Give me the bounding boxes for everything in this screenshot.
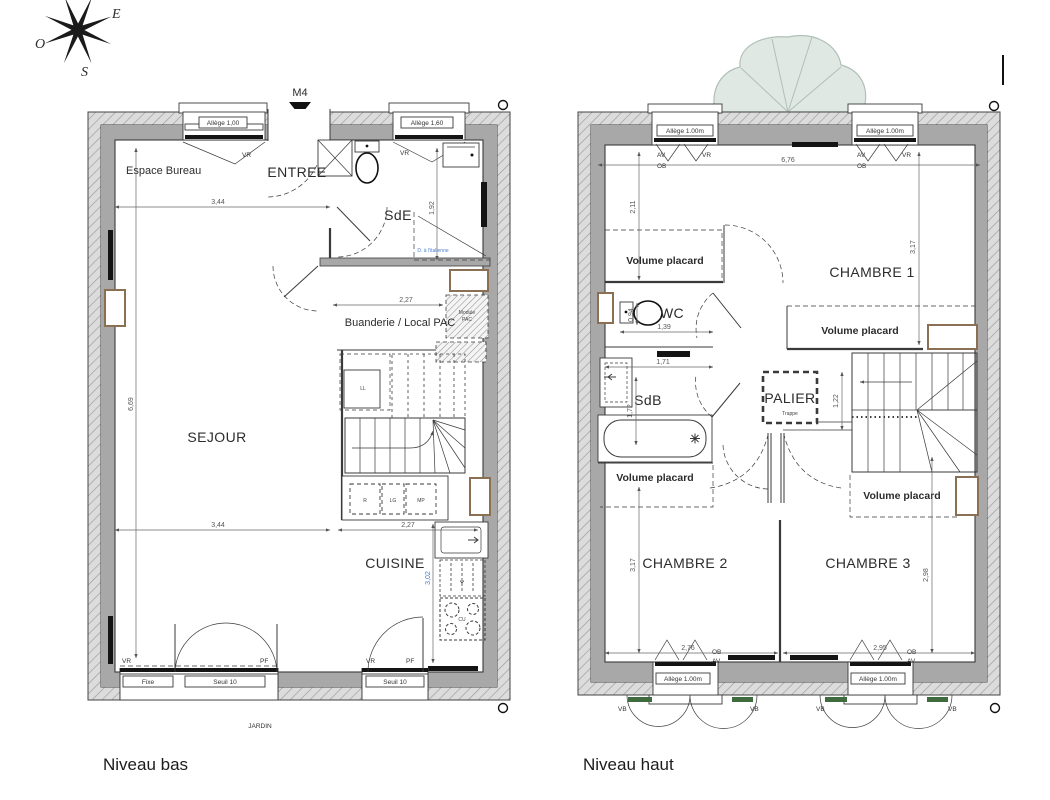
window-bureau-allege: Allège 1,00 (207, 120, 240, 127)
room-chambre2-label: CHAMBRE 2 (642, 555, 727, 571)
vb-3: VB (816, 706, 825, 713)
closet-4-label: Volume placard (863, 490, 940, 502)
window-bureau-vr: VR (242, 152, 251, 159)
radiator-palier-top (792, 142, 838, 147)
room-entree-label: ENTREE (267, 164, 326, 180)
room-bureau-label: Espace Bureau (126, 165, 201, 177)
w1-vr: VR (702, 152, 711, 159)
dim-ch3-h: 2,98 (923, 568, 930, 582)
vb-1: VB (618, 706, 627, 713)
door2-vr: VR (366, 658, 375, 665)
dim-wc-h: 0,94 (628, 308, 635, 322)
tree-icon (714, 36, 866, 112)
dim-ch2-h: 3,17 (630, 558, 637, 572)
toilet-low-icon (355, 141, 379, 183)
closet-2-label: Volume placard (821, 325, 898, 337)
dim-palier-h: 1,22 (833, 394, 840, 408)
window-h4-allege: Allège 1.00m (859, 676, 897, 683)
window-h3-allege: Allège 1.00m (664, 676, 702, 683)
title-niveau-bas: Niveau bas (103, 755, 188, 775)
compass-rose: E O S (15, 0, 145, 85)
dim-sejour-bottom: 3,44 (211, 522, 225, 529)
trappe-label: Trappe (782, 411, 798, 417)
flower-box-1 (628, 697, 652, 702)
w4-ob: OB (907, 649, 916, 656)
axis-mark-top-low (499, 101, 508, 110)
compass-star-icon (45, 0, 112, 63)
lg-label: LG (390, 498, 397, 504)
title-niveau-haut: Niveau haut (583, 755, 674, 775)
m4-label: M4 (292, 87, 307, 99)
mp-label: MP (417, 498, 425, 504)
module-pac-label-1: Module (459, 310, 476, 316)
exterior-walls-low (88, 112, 510, 700)
hob-label: CU (458, 617, 466, 623)
w3-av: AV (712, 658, 721, 665)
dim-kitchen-w: 2,27 (401, 522, 415, 529)
radiator-wc (657, 351, 690, 357)
compass-west-label: O (35, 37, 45, 52)
flower-box-3 (825, 697, 847, 702)
axis-mark-bottom-low (499, 704, 508, 713)
seuil-2-label: Seuil 10 (383, 679, 407, 686)
room-sdb-label: SdB (634, 392, 662, 408)
door2-pf: PF (406, 658, 414, 665)
flower-box-4 (927, 697, 948, 702)
radiator-ch3 (790, 655, 838, 660)
stair-window-frame-top (928, 325, 977, 349)
room-sde-label: SdE (384, 207, 412, 223)
garden-label: JARDIN (248, 723, 272, 730)
dim-ch1-h: 3,17 (910, 240, 917, 254)
plan-niveau-bas: M4 Allège 1,00 VR Allège 1,60 VR (70, 78, 530, 773)
flower-box-2 (732, 697, 753, 702)
room-palier-label: PALIER (764, 390, 815, 406)
w3-ob: OB (712, 649, 721, 656)
kitchen-window-frame (470, 478, 490, 515)
vb-4: VB (948, 706, 957, 713)
dim-left-top: 2,11 (630, 200, 637, 213)
compass-east-label: E (111, 7, 121, 22)
plan-niveau-haut: Allège 1.00m AV VR OB Allège 1.00m AV VR… (560, 25, 1020, 775)
radiator-sejour-bottom (108, 616, 113, 664)
bathtub-icon (598, 415, 712, 462)
module-pac-label-2: PAC (462, 317, 472, 323)
radiator-ch2 (728, 655, 775, 660)
axis-mark-top-high (990, 102, 999, 111)
seuil-1-label: Seuil 10 (213, 679, 237, 686)
stair-window-frame-bottom (956, 477, 978, 515)
shower-label: D. à l'italienne (417, 248, 448, 254)
room-chambre3-label: CHAMBRE 3 (825, 555, 910, 571)
w4-av: AV (907, 658, 916, 665)
kitchen-counter: R LG MP (342, 476, 448, 520)
fixe-label: Fixe (142, 679, 155, 686)
dim-sdb-h: 1,72 (627, 404, 634, 418)
vb-2: VB (750, 706, 759, 713)
buanderie-window-frame (450, 270, 488, 291)
dim-sejour-top: 3,44 (211, 199, 225, 206)
radiator-sejour-top (108, 230, 113, 280)
washer-label: LL (360, 386, 366, 392)
w2-vr: VR (902, 152, 911, 159)
w2-av: AV (857, 152, 866, 159)
w2-ob: OB (857, 163, 866, 170)
window-h1-allege: Allège 1.00m (666, 128, 704, 135)
closet-3-label: Volume placard (616, 472, 693, 484)
kitchen-counter-bar (428, 666, 478, 671)
dim-sde-h: 1,92 (429, 201, 436, 215)
closet-1-label: Volume placard (626, 255, 703, 267)
room-buanderie-label: Buanderie / Local PAC (345, 317, 456, 329)
door1-pf: PF (260, 658, 268, 665)
washbasin-high-icon (600, 358, 632, 407)
axis-mark-bottom-high (991, 704, 1000, 713)
w1-av: AV (657, 152, 666, 159)
dim-buanderie-w: 2,27 (399, 297, 413, 304)
window-sde-allege: Allège 1,60 (411, 120, 444, 127)
window-sde-vr: VR (400, 150, 409, 157)
dim-kitchen-h: 3,02 (425, 571, 432, 585)
wc-window-frame (598, 293, 613, 323)
room-chambre1-label: CHAMBRE 1 (829, 264, 914, 280)
dim-ch3-w: 2,95 (873, 645, 887, 652)
dim-sejour-h: 6,69 (128, 397, 135, 411)
room-cuisine-label: CUISINE (365, 555, 425, 571)
radiator-sde (481, 182, 487, 227)
dim-ch2-w: 2,76 (681, 645, 695, 652)
w1-ob: OB (657, 163, 666, 170)
dim-total-w: 6,76 (781, 157, 795, 164)
wall-box-frame (105, 290, 125, 326)
fridge-label: R (363, 498, 367, 504)
window-h2-allege: Allège 1.00m (866, 128, 904, 135)
room-wc-label: WC (660, 305, 684, 321)
dim-hall-w: 1,71 (656, 359, 670, 366)
floor-plan-sheet: E O S M4 (0, 0, 1050, 800)
room-sejour-label: SEJOUR (187, 429, 246, 445)
door1-vr: VR (122, 658, 131, 665)
washbasin-low-icon (443, 143, 479, 167)
dim-wc-w: 1,39 (657, 324, 671, 331)
